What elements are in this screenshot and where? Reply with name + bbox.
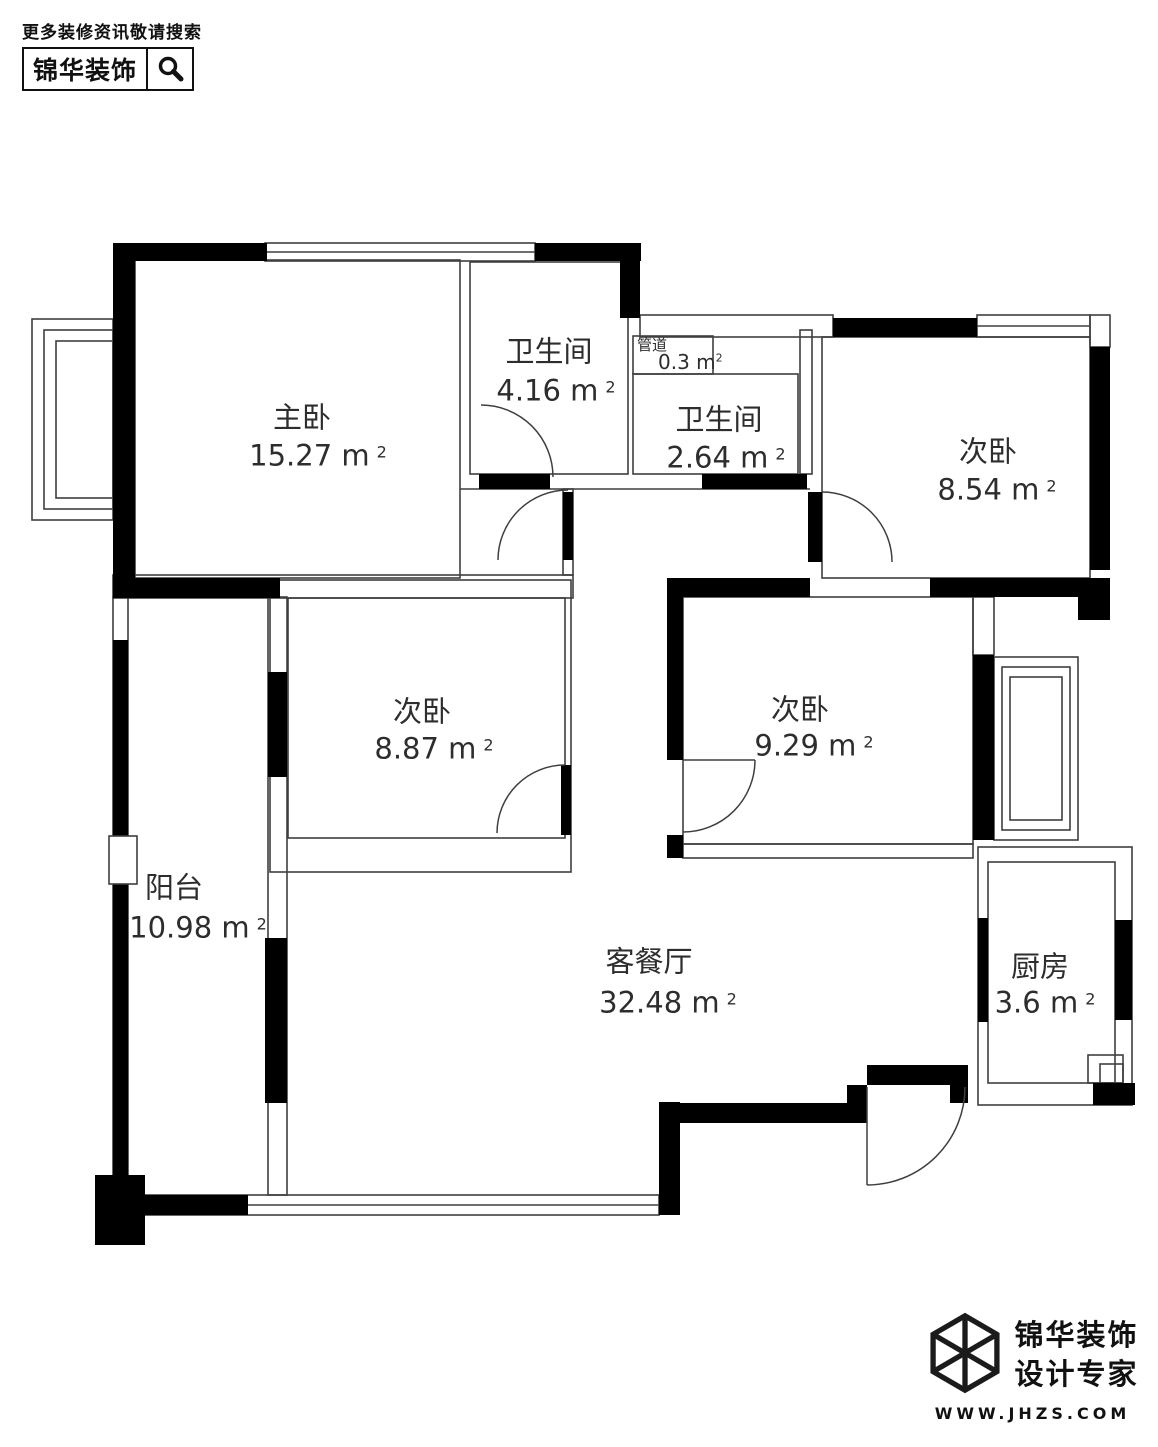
area-bathroom-2: 2.64 m2	[666, 444, 785, 473]
area-bedroom-4: 9.29 m2	[754, 732, 873, 761]
area-balcony: 10.98 m2	[129, 914, 267, 943]
area-master-bedroom: 15.27 m2	[249, 442, 387, 471]
bathroom-1-door	[481, 405, 553, 477]
hall-divider-wall	[800, 330, 812, 474]
area-bedroom-3: 8.87 m2	[374, 735, 493, 764]
label-living-dining: 客餐厅	[605, 948, 692, 977]
bedroom-4-bottom-wall	[683, 844, 973, 858]
label-bedroom-3: 次卧	[393, 698, 451, 727]
area-kitchen: 3.6 m2	[995, 989, 1096, 1018]
right-bay-window	[994, 657, 1078, 840]
bedroom-4-right-wall-upper	[973, 597, 994, 655]
bedroom-2-door	[822, 492, 892, 562]
area-living-dining: 32.48 m2	[599, 989, 737, 1018]
area-bedroom-2: 8.54 m2	[937, 476, 1056, 505]
kitchen-flue-outer	[1088, 1055, 1123, 1083]
footer-brand-line2: 设计专家	[1014, 1355, 1138, 1394]
label-bathroom-2: 卫生间	[675, 406, 762, 435]
bedroom-3-door	[497, 765, 565, 833]
balcony-wall-column	[109, 836, 137, 884]
label-bathroom-1: 卫生间	[505, 338, 592, 367]
label-balcony: 阳台	[145, 874, 203, 903]
label-bedroom-2: 次卧	[959, 438, 1017, 467]
kitchen-flue-inner	[1100, 1064, 1123, 1083]
top-wall-band	[640, 315, 833, 337]
bedroom-2-room	[822, 337, 1090, 578]
footer-logo: 锦华装饰 设计专家 WWW.JHZS.COM	[925, 1312, 1140, 1423]
label-kitchen: 厨房	[1011, 953, 1069, 982]
top-right-notch	[1090, 315, 1110, 347]
master-bedroom-door	[498, 490, 568, 560]
label-master-bedroom: 主卧	[273, 404, 331, 433]
floor-plan-drawing	[0, 0, 1158, 1447]
footer-website: WWW.JHZS.COM	[925, 1404, 1140, 1423]
bedroom-4-door	[683, 760, 755, 832]
cube-logo-icon	[926, 1312, 1004, 1398]
footer-brand-line1: 锦华装饰	[1014, 1316, 1138, 1355]
label-bedroom-4: 次卧	[771, 696, 829, 725]
area-duct: 0.3 m2	[658, 352, 723, 372]
floor-plan-page: 更多装修资讯敬请搜索 锦华装饰	[0, 0, 1158, 1447]
area-bathroom-1: 4.16 m2	[496, 377, 615, 406]
